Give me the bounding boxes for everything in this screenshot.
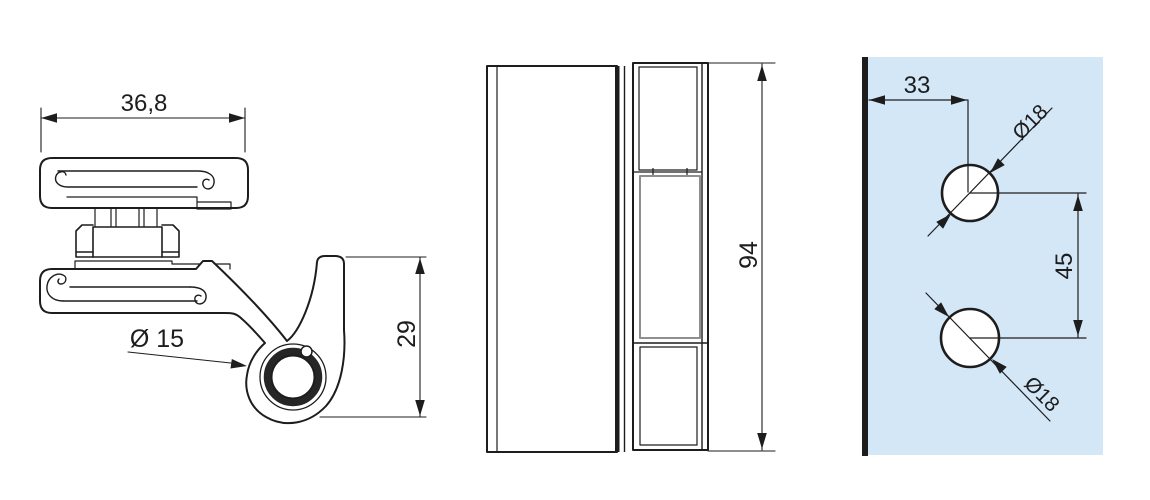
pivot-bore (272, 356, 315, 399)
drawing-canvas: 36,8 Ø 15 29 94 (0, 0, 1150, 500)
leader-line (128, 352, 240, 364)
arrowhead (757, 65, 767, 81)
front-view-dimensions: 36,8 Ø 15 29 (41, 90, 426, 417)
clamp-tab-right (162, 225, 179, 257)
dim-edge-offset-label: 33 (904, 72, 931, 99)
arrowhead (229, 113, 245, 123)
arrowhead (757, 433, 767, 449)
mounting-view: 33 Ø18 45 Ø18 (862, 57, 1103, 456)
arrowhead (415, 400, 425, 416)
dim-hole-spacing-label: 45 (1051, 253, 1078, 280)
top-rail-outline (40, 158, 248, 208)
clamp-block (93, 227, 162, 257)
clamp-tab-left (76, 225, 93, 257)
side-body-left (487, 66, 617, 452)
arrowhead (41, 113, 57, 123)
dim-width-label: 36,8 (121, 90, 168, 117)
side-view (487, 63, 708, 452)
top-rail-channel (56, 172, 197, 187)
top-rail-channel (58, 171, 214, 189)
technical-drawing: 36,8 Ø 15 29 94 (0, 0, 1150, 500)
dim-height-label: 29 (393, 320, 421, 348)
dim-bore-label: Ø 15 (130, 325, 184, 353)
side-gasket-bar (615, 66, 620, 452)
side-top-panel (639, 67, 697, 170)
connector-riser (95, 208, 157, 226)
side-divider-ticks (634, 168, 702, 176)
side-view-dimensions: 94 (708, 63, 775, 451)
side-bottom-panel (640, 347, 697, 445)
arrowhead (230, 359, 247, 371)
dim-height-label: 94 (735, 241, 763, 269)
pivot-clip (301, 346, 312, 357)
arrowhead (415, 258, 425, 274)
front-view (40, 158, 344, 423)
frame-edge-line (862, 57, 868, 456)
side-middle-panel (640, 176, 700, 338)
